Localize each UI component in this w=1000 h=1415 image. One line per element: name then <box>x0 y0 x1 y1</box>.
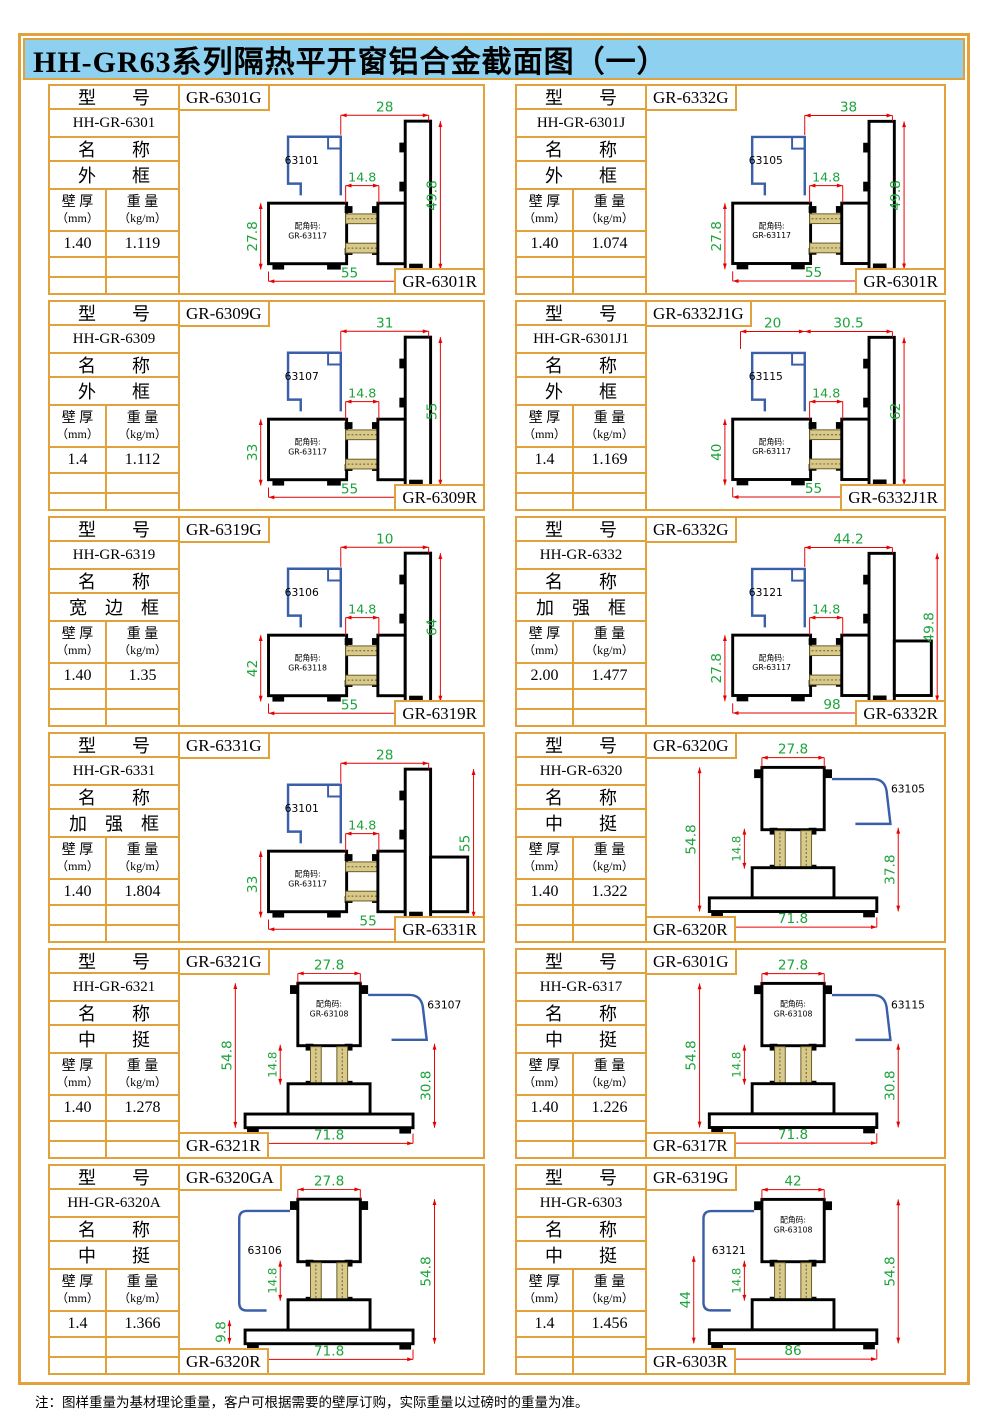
r-profile-label: GR-6301R <box>394 268 485 295</box>
svg-text:27.8: 27.8 <box>314 1174 344 1190</box>
g-profile-label: GR-6309G <box>178 300 270 327</box>
svg-text:14.8: 14.8 <box>729 836 743 862</box>
thickness-header: 壁 厚 （mm） <box>517 1270 574 1310</box>
values-row: 1.4 1.112 <box>50 448 178 474</box>
profile-cell: 型 号 HH-GR-6317 名 称 中 挺 壁 厚 （mm） 重 量 （kg/… <box>515 948 946 1159</box>
svg-text:63105: 63105 <box>749 154 783 167</box>
empty-row <box>517 474 645 494</box>
model-value: HH-GR-6301J1 <box>517 326 645 354</box>
g-profile-label: GR-6320G <box>645 732 737 759</box>
name-value: 加 强 框 <box>50 810 178 838</box>
model-header: 型 号 <box>517 734 645 758</box>
g-profile-label: GR-6320GA <box>178 1164 282 1191</box>
cross-section-drawing: 6310527.814.854.837.871.8 <box>647 734 944 941</box>
spec-table: 型 号 HH-GR-6301J1 名 称 外 框 壁 厚 （mm） 重 量 （k… <box>517 302 647 509</box>
name-header: 名 称 <box>517 1218 645 1242</box>
svg-text:49.8: 49.8 <box>921 612 937 642</box>
svg-text:GR-63118: GR-63118 <box>288 663 327 672</box>
svg-text:14.8: 14.8 <box>348 818 376 833</box>
units-row: 壁 厚 （mm） 重 量 （kg/m） <box>517 1054 645 1096</box>
empty-row <box>517 926 645 941</box>
profile-cell: 型 号 HH-GR-6320A 名 称 中 挺 壁 厚 （mm） 重 量 （kg… <box>48 1164 485 1375</box>
thickness-header: 壁 厚 （mm） <box>517 190 574 230</box>
model-header: 型 号 <box>517 518 645 542</box>
empty-row <box>50 474 178 494</box>
svg-text:GR-63108: GR-63108 <box>774 1225 813 1234</box>
svg-text:配角码:: 配角码: <box>316 999 342 1009</box>
weight-value: 1.226 <box>574 1096 645 1120</box>
model-value: HH-GR-6320 <box>517 758 645 786</box>
cross-section-drawing: 63115配角码:GR-631172030.514.8406255 <box>647 302 944 509</box>
weight-value: 1.112 <box>107 448 178 472</box>
cross-section-drawing: 63105配角码:GR-631173814.827.849.855 <box>647 86 944 293</box>
values-row: 1.4 1.366 <box>50 1312 178 1338</box>
thickness-value: 1.40 <box>50 232 107 256</box>
model-header: 型 号 <box>50 302 178 326</box>
svg-text:62: 62 <box>888 403 904 420</box>
units-row: 壁 厚 （mm） 重 量 （kg/m） <box>50 190 178 232</box>
spec-table: 型 号 HH-GR-6301 名 称 外 框 壁 厚 （mm） 重 量 （kg/… <box>50 86 180 293</box>
svg-text:14.8: 14.8 <box>348 602 376 617</box>
cross-section-drawing: 63106配角码:GR-631181014.8426455 <box>180 518 483 725</box>
svg-text:配角码:: 配角码: <box>295 869 321 879</box>
profile-cell: 型 号 HH-GR-6331 名 称 加 强 框 壁 厚 （mm） 重 量 （k… <box>48 732 485 943</box>
units-row: 壁 厚 （mm） 重 量 （kg/m） <box>517 190 645 232</box>
svg-text:55: 55 <box>458 835 474 852</box>
name-value: 外 框 <box>517 162 645 190</box>
empty-row <box>50 258 178 278</box>
thickness-value: 1.40 <box>50 1096 107 1120</box>
profile-cell: 型 号 HH-GR-6301J 名 称 外 框 壁 厚 （mm） 重 量 （kg… <box>515 84 946 295</box>
svg-text:30.5: 30.5 <box>833 316 863 332</box>
thickness-value: 1.40 <box>517 880 574 904</box>
weight-header: 重 量 （kg/m） <box>107 190 178 230</box>
weight-value: 1.074 <box>574 232 645 256</box>
name-header: 名 称 <box>50 1002 178 1026</box>
r-profile-label: GR-6317R <box>645 1132 736 1159</box>
spec-table: 型 号 HH-GR-6320A 名 称 中 挺 壁 厚 （mm） 重 量 （kg… <box>50 1166 180 1373</box>
empty-row <box>517 1358 645 1373</box>
svg-text:55: 55 <box>805 265 822 281</box>
svg-text:27.8: 27.8 <box>245 221 261 251</box>
svg-text:GR-63117: GR-63117 <box>752 663 791 672</box>
svg-text:54.8: 54.8 <box>882 1256 898 1286</box>
svg-text:31: 31 <box>376 315 393 331</box>
weight-header: 重 量 （kg/m） <box>574 1270 645 1310</box>
thickness-value: 1.4 <box>50 1312 107 1336</box>
name-header: 名 称 <box>50 354 178 378</box>
svg-text:63107: 63107 <box>427 999 461 1012</box>
empty-row <box>517 1142 645 1157</box>
weight-value: 1.169 <box>574 448 645 472</box>
cross-section-drawing: 63121配角码:GR-631084214.84454.886 <box>647 1166 944 1373</box>
thickness-value: 1.40 <box>50 664 107 688</box>
svg-text:14.8: 14.8 <box>729 1268 743 1294</box>
values-row: 1.40 1.074 <box>517 232 645 258</box>
svg-text:54.8: 54.8 <box>684 1040 700 1070</box>
values-row: 1.4 1.169 <box>517 448 645 474</box>
r-profile-label: GR-6321R <box>178 1132 269 1159</box>
empty-row <box>50 1338 178 1358</box>
model-value: HH-GR-6301J <box>517 110 645 138</box>
weight-header: 重 量 （kg/m） <box>574 1054 645 1094</box>
values-row: 1.40 1.119 <box>50 232 178 258</box>
g-profile-label: GR-6332G <box>645 516 737 543</box>
profile-cell: 型 号 HH-GR-6301J1 名 称 外 框 壁 厚 （mm） 重 量 （k… <box>515 300 946 511</box>
svg-text:10: 10 <box>376 531 393 547</box>
svg-text:27.8: 27.8 <box>778 958 808 974</box>
svg-text:44.2: 44.2 <box>833 532 863 548</box>
weight-header: 重 量 （kg/m） <box>107 838 178 878</box>
svg-text:64: 64 <box>424 619 440 636</box>
name-value: 中 挺 <box>517 1026 645 1054</box>
model-header: 型 号 <box>517 950 645 974</box>
spec-table: 型 号 HH-GR-6309 名 称 外 框 壁 厚 （mm） 重 量 （kg/… <box>50 302 180 509</box>
model-header: 型 号 <box>50 518 178 542</box>
spec-table: 型 号 HH-GR-6331 名 称 加 强 框 壁 厚 （mm） 重 量 （k… <box>50 734 180 941</box>
name-header: 名 称 <box>517 1002 645 1026</box>
model-value: HH-GR-6320A <box>50 1190 178 1218</box>
svg-text:49.8: 49.8 <box>888 180 904 210</box>
thickness-header: 壁 厚 （mm） <box>517 622 574 662</box>
empty-row <box>50 494 178 509</box>
empty-row <box>517 1122 645 1142</box>
title-bar: HH-GR63系列隔热平开窗铝合金截面图（一） <box>23 38 965 80</box>
name-value: 宽 边 框 <box>50 594 178 622</box>
svg-text:86: 86 <box>784 1343 801 1359</box>
name-header: 名 称 <box>50 1218 178 1242</box>
weight-header: 重 量 （kg/m） <box>107 622 178 662</box>
thickness-header: 壁 厚 （mm） <box>517 838 574 878</box>
svg-text:44: 44 <box>678 1291 694 1308</box>
empty-row <box>517 494 645 509</box>
values-row: 2.00 1.477 <box>517 664 645 690</box>
empty-row <box>517 906 645 926</box>
model-value: HH-GR-6309 <box>50 326 178 354</box>
cross-section-drawing: 63107配角码:GR-631173114.8335555 <box>180 302 483 509</box>
svg-text:42: 42 <box>245 660 261 677</box>
weight-value: 1.456 <box>574 1312 645 1336</box>
name-header: 名 称 <box>517 786 645 810</box>
name-header: 名 称 <box>50 786 178 810</box>
g-profile-label: GR-6321G <box>178 948 270 975</box>
svg-text:14.8: 14.8 <box>348 170 376 185</box>
weight-value: 1.477 <box>574 664 645 688</box>
thickness-value: 1.4 <box>517 1312 574 1336</box>
svg-text:27.8: 27.8 <box>709 653 725 683</box>
spec-table: 型 号 HH-GR-6321 名 称 中 挺 壁 厚 （mm） 重 量 （kg/… <box>50 950 180 1157</box>
svg-text:14.8: 14.8 <box>265 1052 279 1078</box>
svg-text:63107: 63107 <box>285 370 319 383</box>
values-row: 1.40 1.322 <box>517 880 645 906</box>
r-profile-label: GR-6309R <box>394 484 485 511</box>
svg-text:30.8: 30.8 <box>419 1071 435 1101</box>
drawing-area: GR-6320G 6310527.814.854.837.871.8 GR-63… <box>647 734 944 941</box>
model-header: 型 号 <box>50 950 178 974</box>
thickness-value: 1.40 <box>517 232 574 256</box>
name-header: 名 称 <box>50 570 178 594</box>
svg-text:14.8: 14.8 <box>729 1052 743 1078</box>
cross-section-drawing: 63101配角码:GR-631172814.827.849.855 <box>180 86 483 293</box>
units-row: 壁 厚 （mm） 重 量 （kg/m） <box>517 406 645 448</box>
svg-text:14.8: 14.8 <box>812 602 840 617</box>
units-row: 壁 厚 （mm） 重 量 （kg/m） <box>517 838 645 880</box>
thickness-header: 壁 厚 （mm） <box>50 1270 107 1310</box>
drawing-area: GR-6301G 63115配角码:GR-6310827.814.854.830… <box>647 950 944 1157</box>
empty-row <box>50 1142 178 1157</box>
profile-cell: 型 号 HH-GR-6301 名 称 外 框 壁 厚 （mm） 重 量 （kg/… <box>48 84 485 295</box>
empty-row <box>50 926 178 941</box>
drawing-area: GR-6319G 63121配角码:GR-631084214.84454.886… <box>647 1166 944 1373</box>
empty-row <box>50 710 178 725</box>
weight-header: 重 量 （kg/m） <box>107 406 178 446</box>
name-value: 外 框 <box>50 162 178 190</box>
name-header: 名 称 <box>517 570 645 594</box>
svg-text:63105: 63105 <box>891 783 925 796</box>
weight-header: 重 量 （kg/m） <box>574 622 645 662</box>
thickness-header: 壁 厚 （mm） <box>50 1054 107 1094</box>
svg-text:30.8: 30.8 <box>882 1070 898 1100</box>
thickness-header: 壁 厚 （mm） <box>50 190 107 230</box>
name-value: 中 挺 <box>50 1026 178 1054</box>
svg-text:GR-63108: GR-63108 <box>774 1009 813 1018</box>
g-profile-label: GR-6332G <box>645 84 737 111</box>
weight-header: 重 量 （kg/m） <box>107 1054 178 1094</box>
units-row: 壁 厚 （mm） 重 量 （kg/m） <box>50 1270 178 1312</box>
units-row: 壁 厚 （mm） 重 量 （kg/m） <box>50 838 178 880</box>
r-profile-label: GR-6331R <box>394 916 485 943</box>
profile-cell: 型 号 HH-GR-6309 名 称 外 框 壁 厚 （mm） 重 量 （kg/… <box>48 300 485 511</box>
g-profile-label: GR-6332J1G <box>645 300 752 327</box>
name-header: 名 称 <box>50 138 178 162</box>
svg-text:54.8: 54.8 <box>219 1040 235 1070</box>
name-value: 加 强 框 <box>517 594 645 622</box>
r-profile-label: GR-6332R <box>855 700 946 727</box>
units-row: 壁 厚 （mm） 重 量 （kg/m） <box>517 1270 645 1312</box>
drawing-area: GR-6331G 63101配角码:GR-631172814.8335555 G… <box>180 734 483 941</box>
r-profile-label: GR-6320R <box>178 1348 269 1375</box>
svg-text:14.8: 14.8 <box>348 386 376 401</box>
weight-value: 1.322 <box>574 880 645 904</box>
weight-value: 1.804 <box>107 880 178 904</box>
empty-row <box>50 1122 178 1142</box>
svg-text:配角码:: 配角码: <box>295 221 321 231</box>
spec-table: 型 号 HH-GR-6320 名 称 中 挺 壁 厚 （mm） 重 量 （kg/… <box>517 734 647 941</box>
svg-text:71.8: 71.8 <box>778 911 808 927</box>
thickness-header: 壁 厚 （mm） <box>50 622 107 662</box>
svg-text:配角码:: 配角码: <box>295 437 321 447</box>
svg-text:27.8: 27.8 <box>778 742 808 758</box>
model-header: 型 号 <box>50 86 178 110</box>
spec-table: 型 号 HH-GR-6319 名 称 宽 边 框 壁 厚 （mm） 重 量 （k… <box>50 518 180 725</box>
svg-text:28: 28 <box>376 99 393 115</box>
svg-text:9.8: 9.8 <box>214 1321 230 1343</box>
spec-table: 型 号 HH-GR-6317 名 称 中 挺 壁 厚 （mm） 重 量 （kg/… <box>517 950 647 1157</box>
thickness-value: 2.00 <box>517 664 574 688</box>
svg-text:配角码:: 配角码: <box>295 653 321 663</box>
svg-text:14.8: 14.8 <box>812 170 840 185</box>
values-row: 1.40 1.35 <box>50 664 178 690</box>
svg-text:配角码:: 配角码: <box>759 652 785 662</box>
units-row: 壁 厚 （mm） 重 量 （kg/m） <box>50 1054 178 1096</box>
svg-text:63115: 63115 <box>891 999 925 1012</box>
svg-text:GR-63117: GR-63117 <box>288 447 327 456</box>
values-row: 1.40 1.278 <box>50 1096 178 1122</box>
weight-header: 重 量 （kg/m） <box>574 190 645 230</box>
thickness-header: 壁 厚 （mm） <box>517 406 574 446</box>
r-profile-label: GR-6320R <box>645 916 736 943</box>
model-value: HH-GR-6303 <box>517 1190 645 1218</box>
svg-text:28: 28 <box>376 747 393 763</box>
svg-text:配角码:: 配角码: <box>780 999 806 1009</box>
name-value: 中 挺 <box>517 810 645 838</box>
weight-value: 1.278 <box>107 1096 178 1120</box>
cross-section-drawing: 63121配角码:GR-6311744.214.827.849.898 <box>647 518 944 725</box>
thickness-value: 1.40 <box>517 1096 574 1120</box>
svg-text:配角码:: 配角码: <box>780 1215 806 1225</box>
cross-section-drawing: 63101配角码:GR-631172814.8335555 <box>180 734 483 941</box>
units-row: 壁 厚 （mm） 重 量 （kg/m） <box>517 622 645 664</box>
empty-row <box>517 278 645 293</box>
drawing-area: GR-6332J1G 63115配角码:GR-631172030.514.840… <box>647 302 944 509</box>
cross-section-drawing: 63115配角码:GR-6310827.814.854.830.871.8 <box>647 950 944 1157</box>
weight-value: 1.35 <box>107 664 178 688</box>
g-profile-label: GR-6301G <box>645 948 737 975</box>
r-profile-label: GR-6303R <box>645 1348 736 1375</box>
drawing-area: GR-6332G 63121配角码:GR-6311744.214.827.849… <box>647 518 944 725</box>
weight-value: 1.119 <box>107 232 178 256</box>
svg-text:71.8: 71.8 <box>314 1343 344 1359</box>
svg-text:27.8: 27.8 <box>709 221 725 251</box>
svg-text:GR-63117: GR-63117 <box>288 231 327 240</box>
values-row: 1.4 1.456 <box>517 1312 645 1338</box>
thickness-header: 壁 厚 （mm） <box>50 406 107 446</box>
footer-note: 注：图样重量为基材理论重量，客户可根据需要的壁厚订购，实际重量以过磅时的重量为准… <box>35 1391 589 1411</box>
weight-header: 重 量 （kg/m） <box>107 1270 178 1310</box>
thickness-value: 1.40 <box>50 880 107 904</box>
svg-text:71.8: 71.8 <box>778 1127 808 1143</box>
svg-text:33: 33 <box>245 876 261 893</box>
g-profile-label: GR-6319G <box>178 516 270 543</box>
drawing-area: GR-6332G 63105配角码:GR-631173814.827.849.8… <box>647 86 944 293</box>
svg-text:配角码:: 配角码: <box>759 436 785 446</box>
page-title: HH-GR63系列隔热平开窗铝合金截面图（一） <box>25 37 668 81</box>
name-header: 名 称 <box>517 354 645 378</box>
units-row: 壁 厚 （mm） 重 量 （kg/m） <box>50 622 178 664</box>
name-header: 名 称 <box>517 138 645 162</box>
g-profile-label: GR-6319G <box>645 1164 737 1191</box>
empty-row <box>50 906 178 926</box>
model-value: HH-GR-6301 <box>50 110 178 138</box>
drawing-area: GR-6320GA 6310627.814.89.854.871.8 GR-63… <box>180 1166 483 1373</box>
thickness-header: 壁 厚 （mm） <box>517 1054 574 1094</box>
name-value: 中 挺 <box>50 1242 178 1270</box>
r-profile-label: GR-6332J1R <box>840 484 946 511</box>
thickness-value: 1.4 <box>50 448 107 472</box>
svg-text:55: 55 <box>341 481 358 497</box>
profile-cell: 型 号 HH-GR-6321 名 称 中 挺 壁 厚 （mm） 重 量 （kg/… <box>48 948 485 1159</box>
drawing-area: GR-6301G 63101配角码:GR-631172814.827.849.8… <box>180 86 483 293</box>
name-value: 中 挺 <box>517 1242 645 1270</box>
svg-text:GR-63117: GR-63117 <box>752 447 791 456</box>
model-value: HH-GR-6319 <box>50 542 178 570</box>
svg-text:配角码:: 配角码: <box>759 220 785 230</box>
empty-row <box>50 1358 178 1373</box>
model-header: 型 号 <box>50 734 178 758</box>
drawing-area: GR-6321G 63107配角码:GR-6310827.814.854.830… <box>180 950 483 1157</box>
svg-text:GR-63117: GR-63117 <box>288 879 327 888</box>
drawing-area: GR-6309G 63107配角码:GR-631173114.8335555 G… <box>180 302 483 509</box>
g-profile-label: GR-6331G <box>178 732 270 759</box>
cross-section-drawing: 6310627.814.89.854.871.8 <box>180 1166 483 1373</box>
model-header: 型 号 <box>517 302 645 326</box>
svg-text:71.8: 71.8 <box>314 1127 344 1143</box>
svg-text:63115: 63115 <box>749 370 783 383</box>
svg-text:14.8: 14.8 <box>812 386 840 401</box>
svg-text:63106: 63106 <box>248 1244 282 1257</box>
empty-row <box>517 258 645 278</box>
svg-text:63101: 63101 <box>285 154 319 167</box>
svg-text:14.8: 14.8 <box>265 1268 279 1294</box>
model-value: HH-GR-6332 <box>517 542 645 570</box>
spec-table: 型 号 HH-GR-6301J 名 称 外 框 壁 厚 （mm） 重 量 （kg… <box>517 86 647 293</box>
svg-text:54.8: 54.8 <box>419 1256 435 1286</box>
svg-text:54.8: 54.8 <box>684 824 700 854</box>
model-value: HH-GR-6321 <box>50 974 178 1002</box>
weight-header: 重 量 （kg/m） <box>574 838 645 878</box>
drawing-area: GR-6319G 63106配角码:GR-631181014.8426455 G… <box>180 518 483 725</box>
cross-section-drawing: 63107配角码:GR-6310827.814.854.830.871.8 <box>180 950 483 1157</box>
svg-text:49.8: 49.8 <box>424 180 440 210</box>
thickness-value: 1.4 <box>517 448 574 472</box>
name-value: 外 框 <box>517 378 645 406</box>
weight-value: 1.366 <box>107 1312 178 1336</box>
values-row: 1.40 1.804 <box>50 880 178 906</box>
svg-text:63101: 63101 <box>285 802 319 815</box>
svg-text:GR-63117: GR-63117 <box>752 231 791 240</box>
units-row: 壁 厚 （mm） 重 量 （kg/m） <box>50 406 178 448</box>
profile-cell: 型 号 HH-GR-6320 名 称 中 挺 壁 厚 （mm） 重 量 （kg/… <box>515 732 946 943</box>
g-profile-label: GR-6301G <box>178 84 270 111</box>
svg-text:63106: 63106 <box>285 586 319 599</box>
svg-text:GR-63108: GR-63108 <box>310 1009 349 1018</box>
model-value: HH-GR-6331 <box>50 758 178 786</box>
empty-row <box>50 690 178 710</box>
profile-cell: 型 号 HH-GR-6319 名 称 宽 边 框 壁 厚 （mm） 重 量 （k… <box>48 516 485 727</box>
thickness-header: 壁 厚 （mm） <box>50 838 107 878</box>
empty-row <box>517 690 645 710</box>
cells-grid: 型 号 HH-GR-6301 名 称 外 框 壁 厚 （mm） 重 量 （kg/… <box>48 84 946 1375</box>
spec-table: 型 号 HH-GR-6303 名 称 中 挺 壁 厚 （mm） 重 量 （kg/… <box>517 1166 647 1373</box>
svg-text:37.8: 37.8 <box>882 854 898 884</box>
values-row: 1.40 1.226 <box>517 1096 645 1122</box>
svg-text:55: 55 <box>341 265 358 281</box>
model-value: HH-GR-6317 <box>517 974 645 1002</box>
svg-text:38: 38 <box>840 100 857 116</box>
weight-header: 重 量 （kg/m） <box>574 406 645 446</box>
svg-text:55: 55 <box>805 481 822 497</box>
svg-text:40: 40 <box>709 444 725 461</box>
r-profile-label: GR-6319R <box>394 700 485 727</box>
svg-text:33: 33 <box>245 444 261 461</box>
svg-text:63121: 63121 <box>712 1244 746 1257</box>
spec-table: 型 号 HH-GR-6332 名 称 加 强 框 壁 厚 （mm） 重 量 （k… <box>517 518 647 725</box>
svg-text:98: 98 <box>823 697 840 713</box>
svg-text:55: 55 <box>424 403 440 420</box>
r-profile-label: GR-6301R <box>855 268 946 295</box>
svg-text:42: 42 <box>784 1174 801 1190</box>
svg-text:27.8: 27.8 <box>314 958 344 974</box>
